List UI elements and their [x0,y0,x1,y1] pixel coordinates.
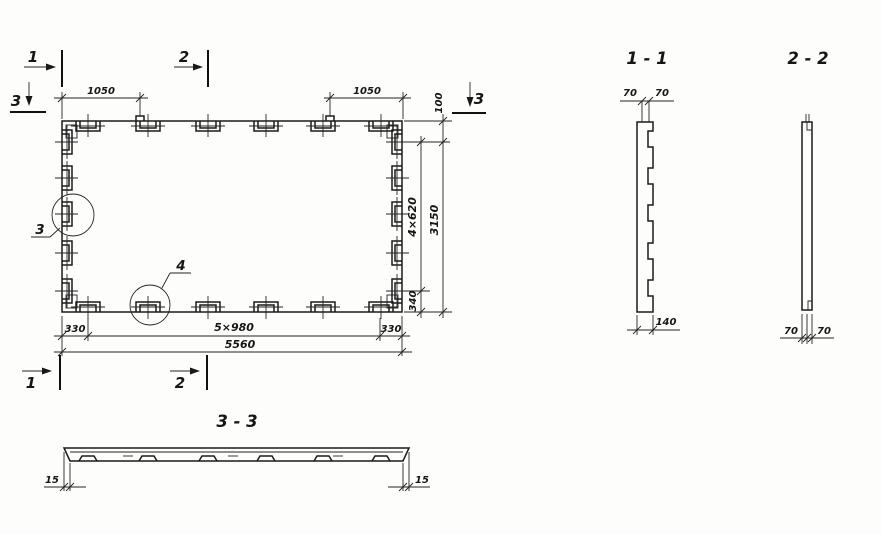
s11-dim-70-left: 70 [623,88,637,99]
marker-3-left: 3 [10,82,46,112]
detail-circle-4: 4 [130,258,191,325]
section-2-2-title: 2 - 2 [787,49,828,68]
detail-label-3: 3 [35,222,44,238]
section-2-2-view: 2 - 2 70 70 [780,49,834,344]
section-1-1-title: 1 - 1 [626,49,667,68]
dim-text-3150: 3150 [428,204,441,235]
dim-bottom: 330 5×980 330 5560 [54,316,412,356]
section-3-3-title: 3 - 3 [216,412,257,431]
plan-outline [62,116,402,312]
s33-strip [64,448,409,461]
dim-text-100: 100 [434,93,445,114]
s11-dim-70-right: 70 [655,88,669,99]
s33-dim-15-left: 15 [45,475,59,486]
marker-1-top: 1 [24,48,62,87]
s22-strip [802,122,812,310]
dim-text-5560: 5560 [225,338,256,351]
s22-dim-70-right: 70 [817,326,831,337]
marker-2-top: 2 [174,48,208,87]
marker-3-right-label: 3 [474,90,484,108]
marker-1-bottom: 1 [22,355,60,392]
dim-text-330-left: 330 [65,324,86,335]
plan-view: 3 4 1050 [10,48,486,392]
section-1-1-view: 1 - 1 70 70 140 [620,49,680,335]
marker-3-right: 3 [452,82,486,113]
s33-dim-15-right: 15 [415,475,429,486]
marker-2-top-label: 2 [179,48,189,66]
dim-text-1050-right: 1050 [353,86,381,97]
marker-1-top-label: 1 [28,48,38,66]
section-3-3-view: 3 - 3 15 15 [44,412,430,491]
s22-dim-70-left: 70 [784,326,798,337]
dim-text-1050-left: 1050 [87,86,115,97]
dim-text-5x980: 5×980 [214,321,254,334]
detail-label-4: 4 [175,258,185,274]
drawing-sheet: 3 4 1050 [0,0,882,534]
dim-text-330-right: 330 [381,324,402,335]
s11-strip [637,122,653,312]
s11-dim-140: 140 [656,317,677,328]
marker-2-bottom-label: 2 [175,374,185,392]
marker-2-bottom: 2 [170,355,207,392]
dim-text-340: 340 [408,291,419,312]
drawing-canvas: 3 4 1050 [0,0,882,534]
plan-tabs [55,114,409,319]
dim-top-right-1050: 1050 [324,86,411,119]
marker-3-left-label: 3 [11,92,21,110]
dim-right-side: 100 4×620 3150 340 [404,93,452,318]
dim-top-left-1050: 1050 [54,86,148,119]
marker-1-bottom-label: 1 [26,374,36,392]
dim-text-4x620: 4×620 [406,197,419,238]
